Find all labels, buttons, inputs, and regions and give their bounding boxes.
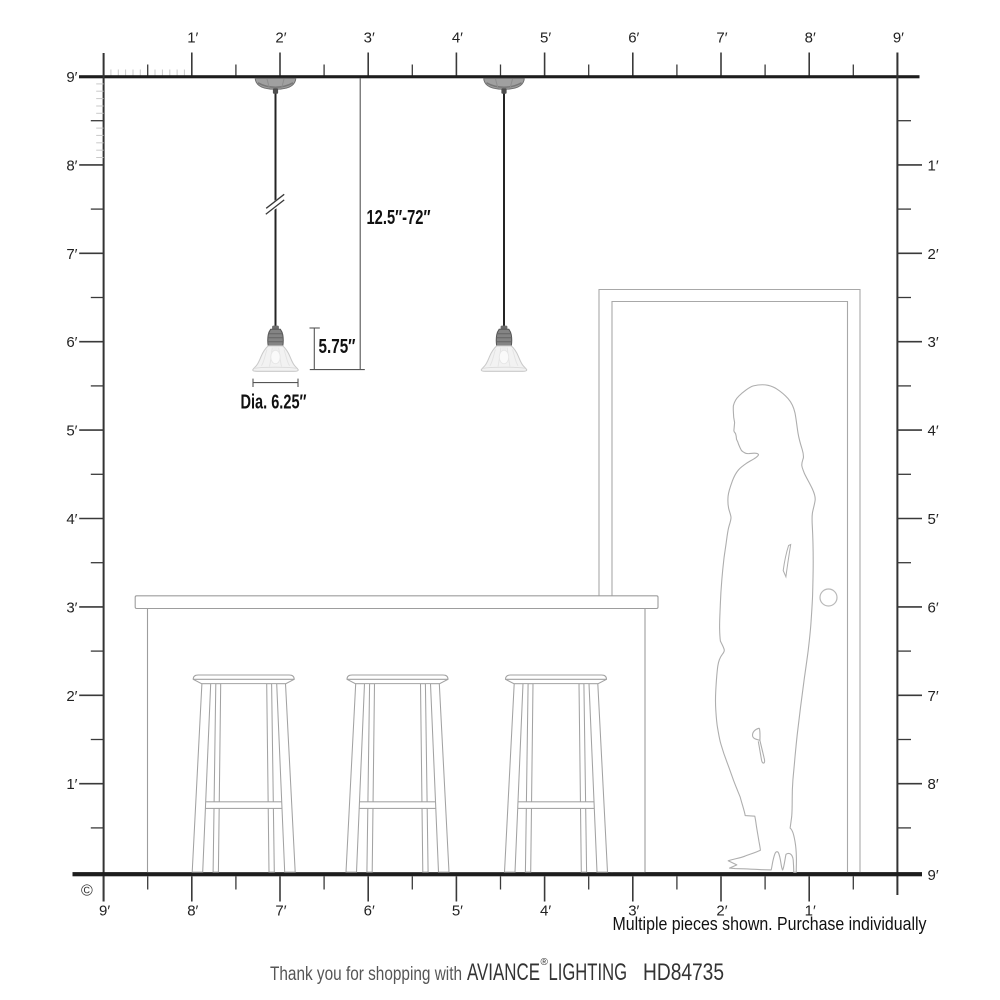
svg-text:7′: 7′	[275, 903, 286, 920]
svg-text:6′: 6′	[66, 334, 77, 351]
svg-text:7′: 7′	[66, 246, 77, 263]
svg-text:HD84735: HD84735	[643, 959, 724, 986]
svg-text:1′: 1′	[928, 157, 939, 174]
svg-text:1′: 1′	[66, 776, 77, 793]
svg-text:3′: 3′	[66, 599, 77, 616]
svg-text:5′: 5′	[928, 511, 939, 528]
svg-text:6′: 6′	[364, 903, 375, 920]
svg-text:4′: 4′	[928, 423, 939, 440]
svg-text:6′: 6′	[628, 30, 639, 47]
svg-text:LIGHTING: LIGHTING	[549, 959, 628, 986]
svg-text:8′: 8′	[928, 776, 939, 793]
svg-text:7′: 7′	[716, 30, 727, 47]
svg-text:5′: 5′	[452, 903, 463, 920]
svg-text:2′: 2′	[66, 688, 77, 705]
svg-text:8′: 8′	[187, 903, 198, 920]
svg-text:5.75″: 5.75″	[319, 336, 356, 358]
svg-text:12.5″-72″: 12.5″-72″	[367, 207, 431, 229]
svg-text:4′: 4′	[66, 511, 77, 528]
svg-text:3′: 3′	[928, 334, 939, 351]
svg-text:4′: 4′	[540, 903, 551, 920]
svg-text:Dia. 6.25″: Dia. 6.25″	[241, 392, 307, 414]
svg-text:2′: 2′	[928, 246, 939, 263]
svg-text:8′: 8′	[805, 30, 816, 47]
svg-text:Thank you for shopping with: Thank you for shopping with	[270, 964, 462, 985]
svg-text:3′: 3′	[364, 30, 375, 47]
svg-text:9′: 9′	[66, 69, 77, 86]
svg-text:Multiple pieces shown. Purcha: Multiple pieces shown. Purchase individu…	[613, 913, 928, 934]
svg-text:8′: 8′	[66, 157, 77, 174]
svg-text:7′: 7′	[928, 688, 939, 705]
svg-text:4′: 4′	[452, 30, 463, 47]
svg-text:9′: 9′	[928, 867, 939, 884]
svg-text:5′: 5′	[66, 423, 77, 440]
svg-text:1′: 1′	[187, 30, 198, 47]
svg-text:©: ©	[81, 883, 93, 900]
svg-text:9′: 9′	[99, 903, 110, 920]
svg-text:AVIANCE: AVIANCE	[467, 959, 540, 986]
svg-text:2′: 2′	[275, 30, 286, 47]
svg-text:9′: 9′	[893, 30, 904, 47]
svg-text:5′: 5′	[540, 30, 551, 47]
svg-text:6′: 6′	[928, 599, 939, 616]
svg-text:®: ®	[541, 957, 549, 968]
